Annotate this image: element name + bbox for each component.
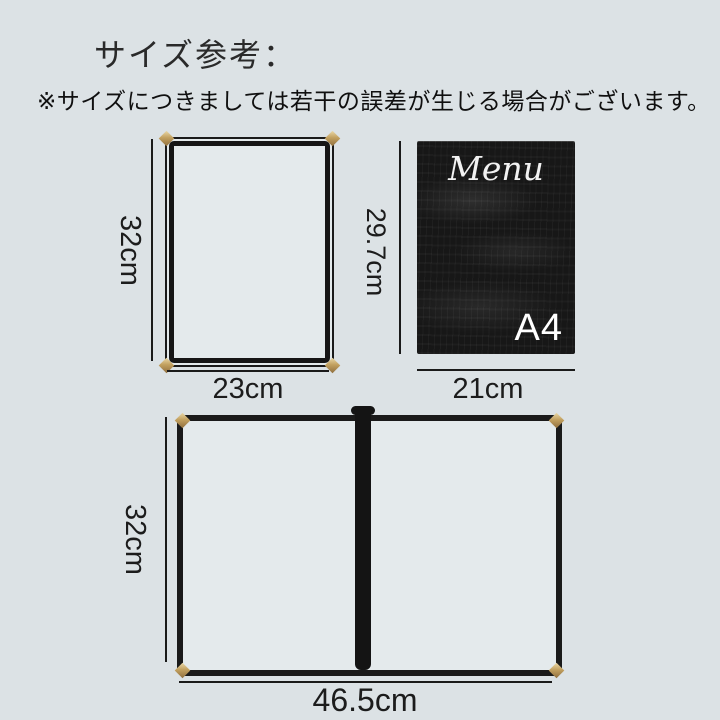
double-cover-height-dimension-line xyxy=(165,417,167,662)
single-cover-width-label: 23cm xyxy=(188,372,308,406)
a4-height-dimension-line xyxy=(399,141,401,354)
chalkboard-menu-text: Menu xyxy=(417,149,575,188)
size-reference-page: サイズ参考： ※サイズにつきましては若干の誤差が生じる場合がございます。 32c… xyxy=(0,0,720,720)
double-cover-height-label: 32cm xyxy=(118,504,152,574)
gold-corner-icon xyxy=(549,663,565,679)
disclaimer-note: ※サイズにつきましては若干の誤差が生じる場合がございます。 xyxy=(37,82,711,116)
single-cover-frame xyxy=(169,141,330,363)
double-cover-width-label: 46.5cm xyxy=(285,683,445,717)
a4-size-text: A4 xyxy=(515,307,563,350)
single-menu-cover xyxy=(165,137,334,367)
single-cover-height-label: 32cm xyxy=(113,215,147,285)
gold-corner-icon xyxy=(175,663,191,679)
a4-width-label: 21cm xyxy=(428,372,548,406)
gold-corner-icon xyxy=(549,413,565,429)
gold-corner-icon xyxy=(175,413,191,429)
a4-chalkboard: Menu A4 xyxy=(417,141,575,354)
single-cover-height-dimension-line xyxy=(151,139,153,361)
page-title: サイズ参考： xyxy=(94,30,297,76)
cover-spine xyxy=(355,408,371,670)
a4-height-label: 29.7cm xyxy=(359,202,393,302)
a4-width-dimension-line xyxy=(417,369,575,371)
